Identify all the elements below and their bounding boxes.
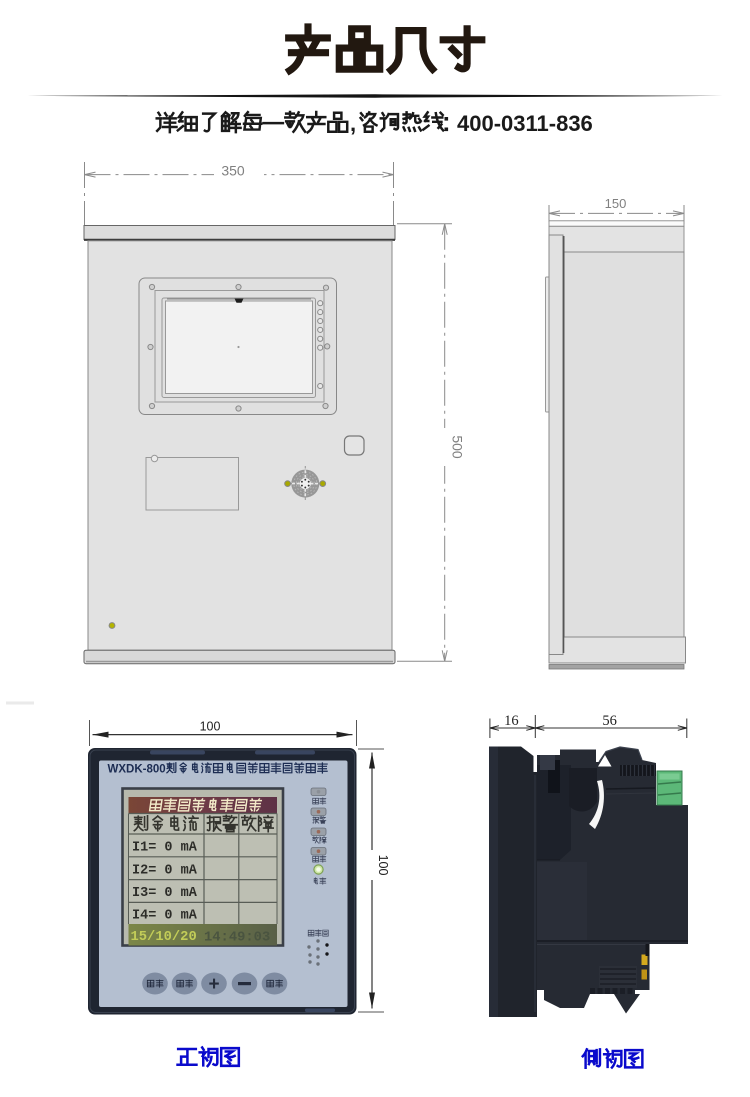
- svg-text:I3= 0 mA: I3= 0 mA: [132, 886, 198, 901]
- svg-text:+: +: [208, 974, 219, 995]
- svg-text:500: 500: [450, 435, 466, 459]
- svg-text:WXDK-800: WXDK-800: [108, 764, 166, 776]
- svg-text:100: 100: [200, 720, 221, 734]
- svg-text:350: 350: [221, 163, 245, 179]
- svg-text:16: 16: [504, 713, 519, 729]
- svg-text:400-0311-836: 400-0311-836: [457, 111, 593, 136]
- svg-text:14:49:03: 14:49:03: [204, 931, 270, 946]
- svg-text:I1= 0 mA: I1= 0 mA: [132, 841, 198, 856]
- svg-text:I2= 0 mA: I2= 0 mA: [132, 863, 198, 878]
- svg-text:150: 150: [605, 196, 627, 211]
- svg-text:100: 100: [376, 855, 390, 876]
- svg-text:15/10/20: 15/10/20: [131, 929, 197, 945]
- svg-text:56: 56: [602, 713, 617, 729]
- svg-text:,: ,: [350, 111, 356, 136]
- svg-text:I4= 0 mA: I4= 0 mA: [132, 909, 198, 924]
